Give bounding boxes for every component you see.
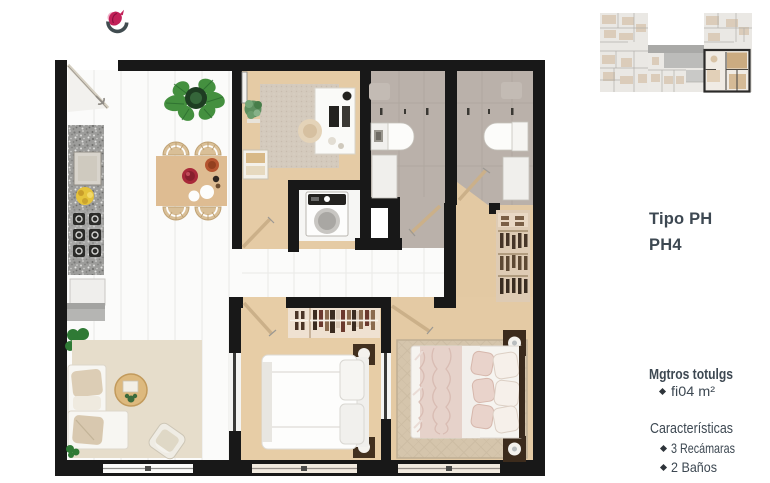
svg-text:Tipo PH: Tipo PH — [649, 210, 712, 228]
svg-text:2 Baños: 2 Baños — [671, 459, 717, 475]
svg-text:3 Recámaras: 3 Recámaras — [671, 440, 735, 456]
svg-text:Características: Características — [650, 420, 733, 437]
svg-text:PH4: PH4 — [649, 236, 682, 254]
svg-text:fi04 m²: fi04 m² — [671, 383, 715, 399]
svg-text:Mgtros totulgs: Mgtros totulgs — [649, 367, 733, 383]
